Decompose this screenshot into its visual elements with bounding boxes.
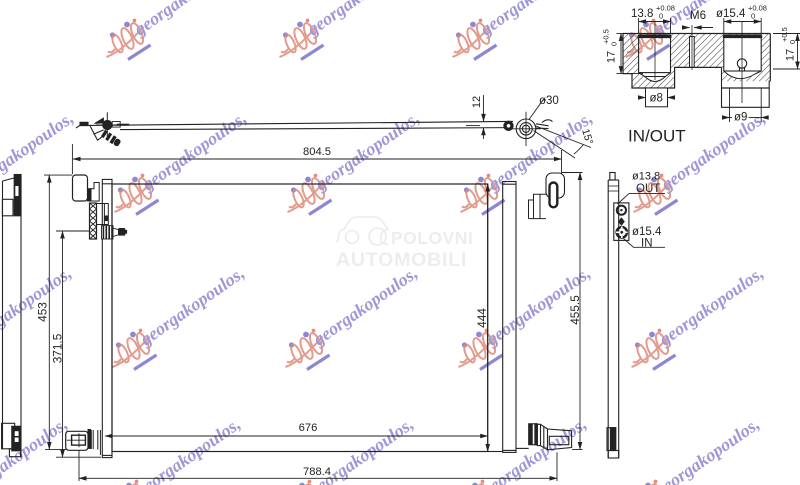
svg-text:453: 453 bbox=[36, 302, 50, 322]
svg-text:IN: IN bbox=[641, 238, 653, 250]
svg-text:+0.5: +0.5 bbox=[780, 27, 789, 42]
svg-text:ø8: ø8 bbox=[650, 93, 663, 105]
svg-text:455.5: 455.5 bbox=[568, 295, 582, 325]
svg-text:0: 0 bbox=[751, 12, 755, 21]
svg-text:ø15.4: ø15.4 bbox=[632, 226, 662, 238]
svg-text:IN/OUT: IN/OUT bbox=[628, 127, 686, 146]
svg-text:ø15.4: ø15.4 bbox=[716, 8, 746, 20]
svg-text:ø9: ø9 bbox=[734, 112, 747, 124]
svg-text:OUT: OUT bbox=[636, 183, 660, 195]
svg-text:POLOVNI: POLOVNI bbox=[391, 228, 473, 248]
svg-text:17: 17 bbox=[785, 49, 797, 61]
svg-text:M6: M6 bbox=[690, 10, 706, 22]
svg-text:AUTOMOBILI: AUTOMOBILI bbox=[336, 249, 467, 271]
svg-text:17: 17 bbox=[606, 51, 618, 63]
svg-text:444: 444 bbox=[475, 308, 489, 328]
svg-text:676: 676 bbox=[299, 422, 318, 434]
svg-text:0: 0 bbox=[788, 40, 797, 44]
svg-text:788.4: 788.4 bbox=[303, 466, 331, 478]
svg-text:0: 0 bbox=[610, 42, 619, 46]
svg-text:ø30: ø30 bbox=[539, 95, 559, 107]
svg-text:ø13.8: ø13.8 bbox=[632, 171, 660, 183]
svg-text:13.8: 13.8 bbox=[631, 8, 653, 20]
svg-text:804.5: 804.5 bbox=[303, 146, 331, 158]
svg-text:12: 12 bbox=[471, 96, 483, 108]
svg-text:+0.5: +0.5 bbox=[602, 29, 611, 44]
svg-text:371.5: 371.5 bbox=[51, 333, 65, 363]
svg-text:15°: 15° bbox=[579, 127, 595, 146]
svg-text:0: 0 bbox=[659, 12, 663, 21]
